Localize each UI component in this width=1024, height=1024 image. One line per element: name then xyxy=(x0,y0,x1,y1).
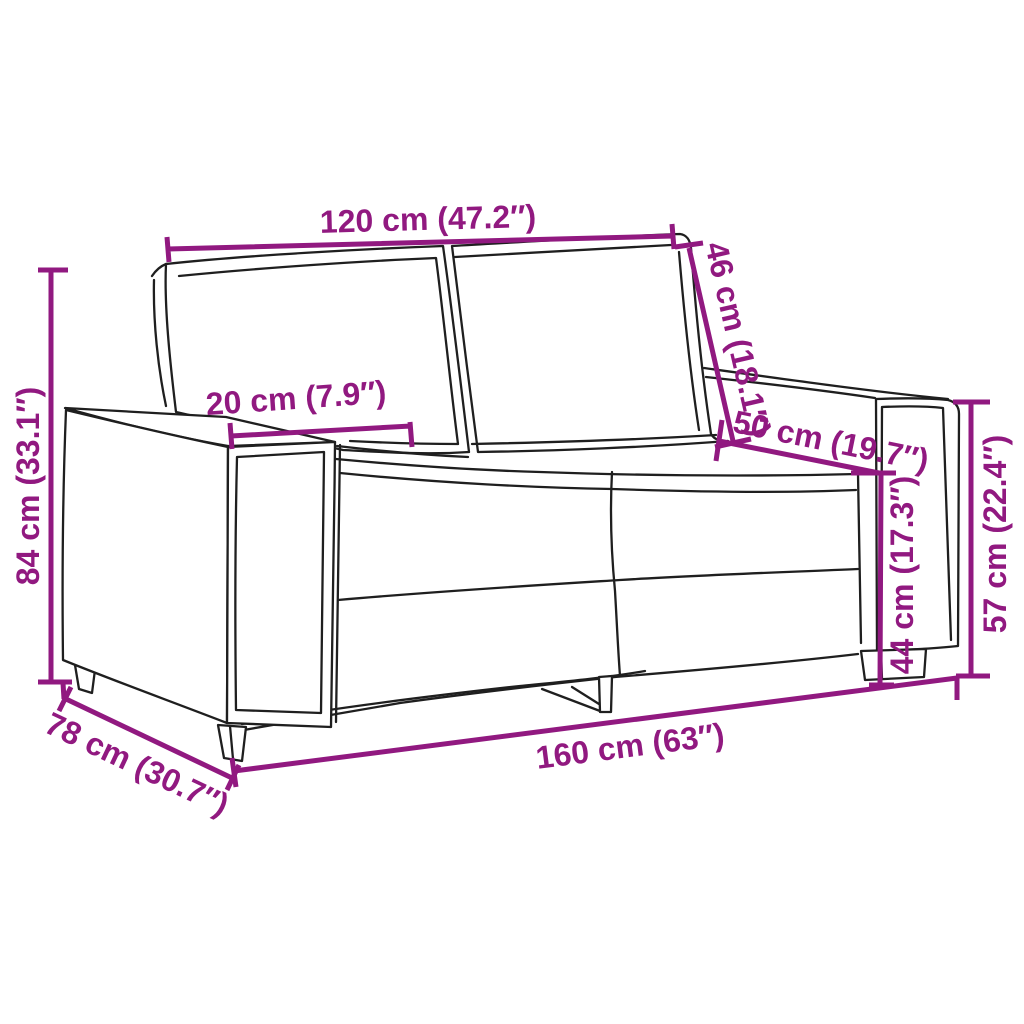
dimension-seat-width-label: 120 cm (47.2″) xyxy=(319,198,536,240)
base-platform-seam xyxy=(338,569,858,600)
product-dimension-diagram: 120 cm (47.2″) 46 cm (18.1″) 84 cm (33.1… xyxy=(0,0,1024,1024)
sofa-dimension-diagram: 120 cm (47.2″) 46 cm (18.1″) 84 cm (33.1… xyxy=(0,0,1024,1024)
armrest-left-front-face xyxy=(227,442,335,727)
dimension-armrest-height-label: 57 cm (22.4″) xyxy=(977,435,1013,634)
dimension-armrest-height: 57 cm (22.4″) xyxy=(953,402,1013,700)
dimension-total-height-label: 84 cm (33.1″) xyxy=(10,387,46,586)
dimension-total-width-label: 160 cm (63″) xyxy=(534,716,727,776)
dimension-seat-height-label: 44 cm (17.3″) xyxy=(884,476,920,675)
seat-arm-seam-right xyxy=(858,474,861,643)
dimension-total-width: 160 cm (63″) xyxy=(232,678,957,787)
armrest-left-inner-edge xyxy=(336,445,340,722)
armrest-left xyxy=(63,408,340,727)
seat-front-edge xyxy=(336,459,857,475)
leg-middle xyxy=(599,676,612,712)
under-frame-stretcher xyxy=(542,687,600,711)
seat-center-seam xyxy=(611,472,620,676)
sofa-line-drawing xyxy=(63,234,959,761)
